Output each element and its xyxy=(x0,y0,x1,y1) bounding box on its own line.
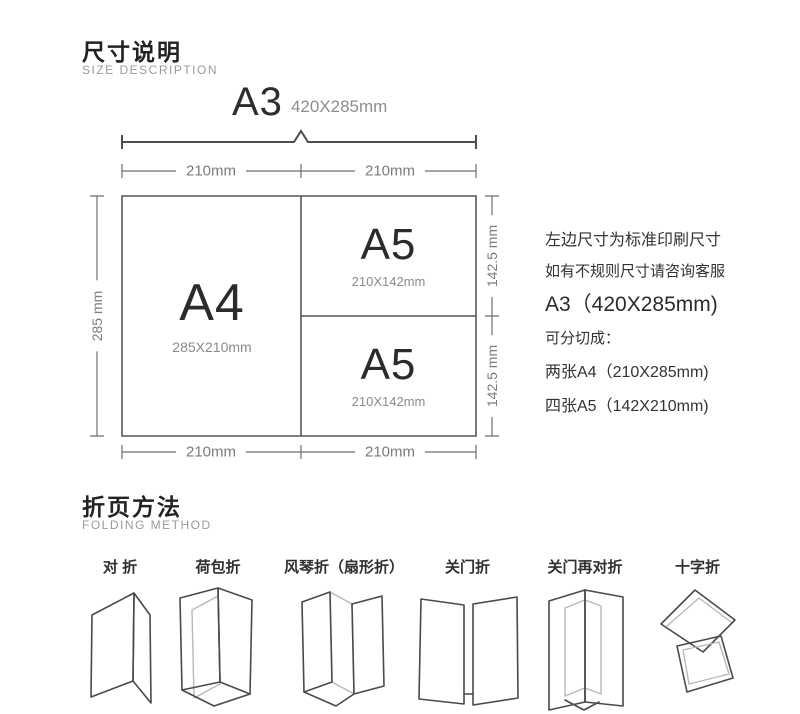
fold-label-pocket: 荷包折 xyxy=(195,556,240,578)
right-dim-bottom: 142.5 mm xyxy=(482,335,502,417)
a5-bottom-label: A5 xyxy=(361,343,417,387)
note-a3-size: A3（420X285mm) xyxy=(545,288,785,318)
folding-section-title: 折页方法 xyxy=(82,488,182,522)
note-four-a5: 四张A5（142X210mm) xyxy=(545,392,785,416)
a5-top-cell: A5 210X142mm xyxy=(301,196,476,316)
top-dim-right: 210mm xyxy=(355,162,425,181)
fold-label-cross: 十字折 xyxy=(675,556,720,578)
pocket-fold-icon xyxy=(168,584,268,712)
fold-label-gate-half: 关门再对折 xyxy=(547,556,622,578)
fold-method-pocket: 荷包折 xyxy=(163,556,273,712)
note-contact-service: 如有不规则尺寸请咨询客服 xyxy=(545,260,785,281)
size-notes: 左边尺寸为标准印刷尺寸 如有不规则尺寸请咨询客服 A3（420X285mm) 可… xyxy=(545,226,785,416)
a4-cell: A4 285X210mm xyxy=(123,196,301,436)
fold-label-accordion: 风琴折（扇形折） xyxy=(284,556,404,578)
folding-section-subtitle: FOLDING METHOD xyxy=(82,518,212,532)
fold-method-gate-half: 关门再对折 xyxy=(525,556,645,712)
gate-half-fold-icon xyxy=(535,584,635,712)
a4-dimensions: 285X210mm xyxy=(172,339,251,355)
right-dim-top: 142.5 mm xyxy=(482,215,502,297)
top-dim-left: 210mm xyxy=(176,162,246,181)
note-can-cut: 可分切成： xyxy=(545,327,785,348)
a5-top-label: A5 xyxy=(361,223,417,267)
infographic-page: 尺寸说明 SIZE DESCRIPTION A3 420X285mm A4 28… xyxy=(0,0,800,714)
left-dim: 285 mm xyxy=(87,281,107,352)
a5-bottom-cell: A5 210X142mm xyxy=(301,316,476,436)
note-standard-size: 左边尺寸为标准印刷尺寸 xyxy=(545,226,785,250)
bottom-dim-left: 210mm xyxy=(176,443,246,462)
fold-method-half: 对 折 xyxy=(65,556,175,712)
fold-label-half: 对 折 xyxy=(103,556,137,578)
note-two-a4: 两张A4（210X285mm) xyxy=(545,358,785,382)
fold-method-cross: 十字折 xyxy=(640,556,755,712)
fold-method-accordion: 风琴折（扇形折） xyxy=(264,556,424,712)
a5-top-dimensions: 210X142mm xyxy=(352,274,426,289)
fold-method-gate: 关门折 xyxy=(410,556,525,712)
gate-fold-icon xyxy=(413,584,523,712)
a5-bottom-dimensions: 210X142mm xyxy=(352,394,426,409)
a4-label: A4 xyxy=(179,277,245,329)
fold-label-gate: 关门折 xyxy=(445,556,490,578)
accordion-fold-icon xyxy=(292,584,396,712)
half-fold-icon xyxy=(70,584,170,712)
cross-fold-icon xyxy=(643,584,753,712)
bottom-dim-right: 210mm xyxy=(355,443,425,462)
